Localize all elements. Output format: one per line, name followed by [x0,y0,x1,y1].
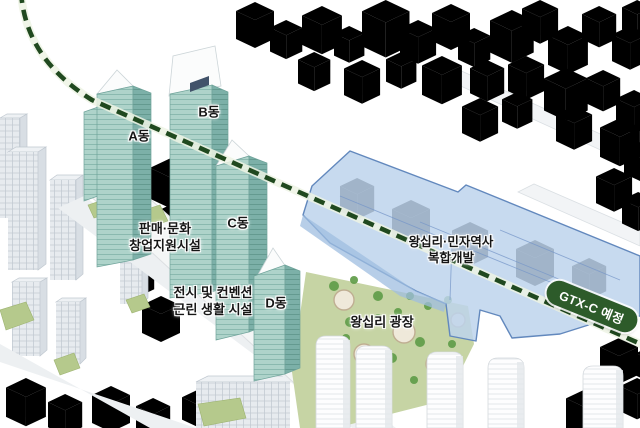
label-wangsimni-plaza: 왕십리 광장 [350,314,413,331]
label-retail-line1: 판매·문화 [129,220,201,237]
label-exhibition-convention-facility: 전시 및 컨벤션 근린 생활 시설 [174,284,253,318]
label-station-complex-development: 왕십리·민자역사 복합개발 [409,234,494,266]
label-building-b: B동 [198,104,219,121]
label-exhibition-line1: 전시 및 컨벤션 [174,284,253,301]
label-building-a: A동 [128,128,149,145]
label-building-c: C동 [227,215,248,232]
label-retail-culture-facility: 판매·문화 창업지원시설 [129,220,201,254]
label-retail-line2: 창업지원시설 [129,237,201,254]
label-exhibition-line2: 근린 생활 시설 [174,301,253,318]
label-station-line2: 복합개발 [409,250,494,266]
label-building-d: D동 [265,295,286,312]
screenshot-root: A동 B동 C동 D동 판매·문화 창업지원시설 전시 및 컨벤션 근린 생활 … [0,0,640,428]
label-station-line1: 왕십리·민자역사 [409,234,494,250]
development-site-aerial-rendering [0,0,640,428]
